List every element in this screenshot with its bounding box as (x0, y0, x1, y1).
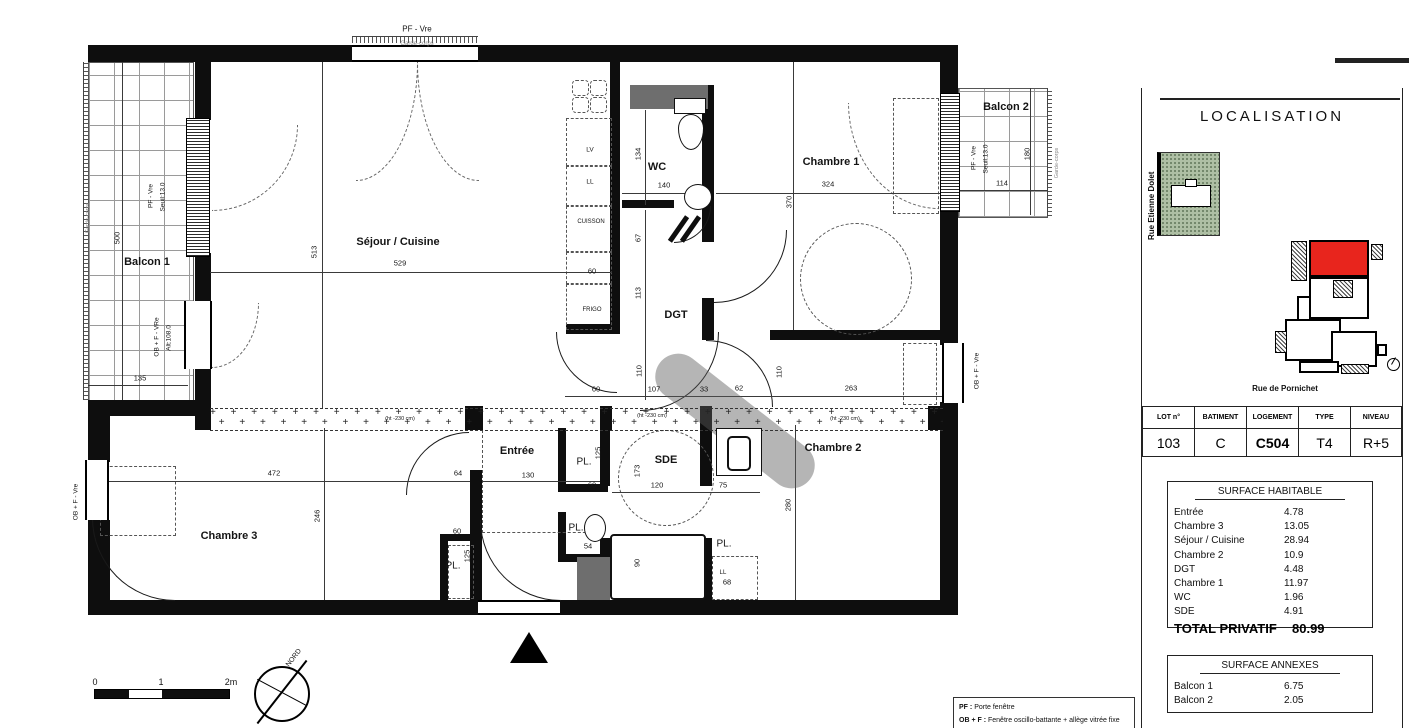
annexe-row-value: 6.75 (1284, 680, 1344, 694)
dimension-line (612, 492, 760, 493)
dimension-line (322, 62, 323, 408)
dim-label: 110 (775, 366, 784, 378)
dashed-furniture (712, 556, 758, 600)
building-outline (1377, 344, 1387, 356)
building-hatch (1371, 244, 1383, 260)
surface-annexes-box: SURFACE ANNEXES Balcon 16.75 Balcon 22.0… (1167, 655, 1373, 713)
surface-row-label: Chambre 1 (1174, 577, 1284, 591)
dim-label: 500 (113, 232, 122, 245)
dim-label: 110 (635, 365, 644, 377)
dashed-furniture (566, 166, 612, 206)
room-label-sejour-cuisine: Séjour / Cuisine (356, 236, 439, 248)
legend-line-obf: OB + F : Fenêtre oscillo-battante + allè… (959, 714, 1129, 727)
window (478, 600, 560, 615)
dim-label: 68 (723, 578, 731, 587)
col-header: LOT n° (1142, 406, 1194, 428)
surface-row-value: 4.48 (1284, 563, 1344, 577)
surface-row-value: 13.05 (1284, 520, 1344, 534)
north-arrow (254, 666, 310, 722)
window (184, 301, 212, 369)
window-type-label: OB + F - Vre (73, 484, 80, 520)
room-label-wc: WC (648, 161, 666, 173)
dimension-line (122, 62, 123, 400)
surface-row-value: 4.91 (1284, 605, 1344, 619)
dim-label: 90 (633, 559, 642, 567)
annexe-row-label: Balcon 1 (1174, 680, 1284, 694)
srow: Chambre 210.9 (1174, 549, 1366, 563)
door-swing-arc (406, 432, 469, 495)
dashed-furniture (800, 223, 912, 335)
localisation-title: LOCALISATION (1135, 108, 1409, 125)
dim-label: 114 (996, 179, 1008, 188)
building-outline (1185, 179, 1197, 187)
dimension-line (565, 396, 945, 397)
closet-label: PL. (445, 561, 460, 572)
dim-label: 125 (594, 447, 603, 460)
railing-label: Garde-corps (1054, 148, 1060, 179)
dim-label: 64 (454, 469, 462, 478)
dim-label: 60 (453, 527, 461, 536)
window-type-label: PF - Vre (402, 25, 431, 34)
scale-tick-label: 1 (158, 677, 163, 687)
balcony-deck (88, 62, 194, 402)
building-hatch (1341, 364, 1369, 374)
surface-row-value: 28.94 (1284, 534, 1344, 548)
room-label-balcon1: Balcon 1 (124, 256, 170, 268)
col-header: NIVEAU (1350, 406, 1401, 428)
dashed-furniture (590, 97, 607, 113)
dimension-line (645, 210, 646, 400)
wall-segment (195, 62, 211, 120)
lot-number: 103 (1142, 428, 1194, 456)
dashed-furniture (572, 80, 589, 96)
wall-segment (940, 45, 958, 95)
dim-label: 33 (700, 385, 708, 394)
dim-label: 472 (268, 469, 281, 478)
scale-bar (94, 689, 230, 699)
window-type-label: OB + F - VRe (154, 317, 161, 356)
dim-label: 67 (634, 234, 643, 242)
wall-segment (88, 600, 478, 615)
dashed-furniture (566, 118, 612, 166)
srow: Chambre 111.97 (1174, 577, 1366, 591)
dimension-line (88, 385, 188, 386)
dim-label: 263 (845, 384, 858, 393)
panel-frame-line (1402, 88, 1403, 728)
wall-segment (195, 253, 211, 303)
srow: Chambre 313.05 (1174, 520, 1366, 534)
batiment: C (1194, 428, 1246, 456)
dim-label: 60 (588, 267, 596, 276)
dim-label: 513 (310, 246, 319, 259)
window-type-label: Alt:108.0 (166, 325, 173, 351)
door-swing-dashed (356, 62, 418, 181)
building-outline (1299, 361, 1339, 373)
closet-label: PL. (568, 523, 583, 534)
srow: SDE4.91 (1174, 605, 1366, 619)
total-privatif-value: 80.99 (1292, 621, 1325, 636)
railing-label: Garde-corps (400, 41, 433, 47)
surface-row-value: 4.78 (1284, 506, 1344, 520)
entrance-arrow (510, 632, 548, 663)
door-swing-arc (714, 230, 787, 303)
wall-segment (940, 208, 958, 345)
logement: C504 (1246, 428, 1298, 456)
dimension-line (95, 481, 470, 482)
dimension-line (958, 190, 1048, 191)
srow: Entrée4.78 (1174, 506, 1366, 520)
dim-label: 529 (394, 259, 407, 268)
surface-habitable-title: SURFACE HABITABLE (1195, 486, 1345, 500)
group (1391, 357, 1396, 364)
panel-frame-line (1160, 98, 1400, 100)
dashed-furniture (618, 430, 714, 526)
building-outline (1171, 185, 1211, 207)
dashed-furniture (590, 80, 607, 96)
wall-segment (622, 200, 674, 208)
surface-row-label: WC (1174, 591, 1284, 605)
dim-label: 280 (784, 499, 793, 512)
legend-line-pf: PF : Porte fenêtre (959, 701, 1129, 714)
window-hatched (940, 93, 960, 212)
window (85, 460, 109, 520)
building-hatch (1275, 331, 1287, 353)
appliance-label-dishwasher: LV (586, 147, 593, 154)
right-panel: LOCALISATION Rue Etienne Dolet Rue de P (1135, 0, 1409, 728)
surface-row-value: 10.9 (1284, 549, 1344, 563)
surface-annexes-title: SURFACE ANNEXES (1200, 660, 1340, 674)
window-type-label: Seuil:13.0 (160, 183, 167, 212)
toilet-bowl (678, 114, 704, 150)
dim-label: 324 (822, 180, 835, 189)
dim-label: 125 (463, 550, 472, 563)
window-type-label: Seuil:13.0 (983, 145, 990, 174)
floor-plan: PF : Porte fenêtre OB + F : Fenêtre osci… (0, 0, 1135, 728)
highlighted-unit (1309, 240, 1369, 277)
dim-label: 135 (134, 374, 147, 383)
srow: WC1.96 (1174, 591, 1366, 605)
surface-row-label: Entrée (1174, 506, 1284, 520)
closet-label: PL. (576, 457, 591, 468)
appliance-label-washer: LL (720, 570, 727, 576)
wall-segment (88, 45, 195, 62)
surface-row-value: 1.96 (1284, 591, 1344, 605)
legend-desc: Porte fenêtre (974, 704, 1014, 711)
dashed-furniture (572, 97, 589, 113)
appliance-label-cooktop: CUISSON (577, 219, 604, 225)
dim-label: 60 (588, 481, 596, 490)
door-swing-dashed (212, 125, 298, 211)
lot-info-table: LOT n° BATIMENT LOGEMENT TYPE NIVEAU 103… (1142, 406, 1402, 457)
window-hatched (186, 118, 210, 257)
total-privatif-label: TOTAL PRIVATIF (1174, 621, 1292, 636)
dim-label: 113 (634, 287, 643, 299)
wall-segment (88, 416, 110, 462)
dimension-line (482, 481, 600, 482)
service-shaft (577, 557, 610, 600)
surface-habitable-box: SURFACE HABITABLE Entrée4.78 Chambre 313… (1167, 481, 1373, 628)
room-label-chambre2: Chambre 2 (805, 442, 862, 454)
dim-label: 180 (1023, 148, 1032, 161)
door-swing-dashed (417, 62, 479, 181)
legend-box: PF : Porte fenêtre OB + F : Fenêtre osci… (953, 697, 1135, 728)
dim-label: 134 (634, 148, 643, 161)
dim-label: 60 (592, 385, 600, 394)
dim-label: 246 (313, 510, 322, 523)
door-swing-dashed (212, 303, 259, 368)
room-label-entree: Entrée (500, 445, 534, 457)
appliance-label-washer: LL (586, 179, 593, 186)
wall-segment (95, 690, 129, 698)
dim-label: 370 (785, 196, 794, 209)
sde-washbasin-bowl (727, 436, 751, 471)
annexe-row-value: 2.05 (1284, 694, 1344, 708)
ceiling-height-note: (ht -230 cm) (385, 416, 415, 422)
window-type-label: OB + F - Vre (974, 353, 981, 389)
surface-row-label: SDE (1174, 605, 1284, 619)
wall-segment (560, 600, 958, 615)
room-label-sde: SDE (655, 454, 678, 466)
door-swing-arc (556, 332, 617, 393)
trow: TOTAL PRIVATIF80.99 (1174, 621, 1366, 636)
surface-row-value: 11.97 (1284, 577, 1344, 591)
pl-washbasin (584, 514, 606, 542)
closet-label: PL. (716, 539, 731, 550)
panel-frame-line (1335, 58, 1409, 63)
dim-label: 130 (522, 471, 535, 480)
wall-segment (195, 406, 211, 430)
dim-label: 173 (633, 465, 642, 478)
srow: Balcon 22.05 (1174, 694, 1366, 708)
site-map-green (1157, 152, 1220, 236)
window (352, 45, 478, 62)
street-label-bottom: Rue de Pornichet (1225, 384, 1345, 393)
dimension-line (645, 110, 646, 205)
wall-segment (88, 400, 210, 416)
col-header: BATIMENT (1194, 406, 1246, 428)
dimension-line (324, 428, 325, 600)
dim-label: 54 (584, 542, 592, 551)
srow: DGT4.48 (1174, 563, 1366, 577)
srow: Séjour / Cuisine28.94 (1174, 534, 1366, 548)
dashed-furniture (100, 466, 176, 536)
col-header: TYPE (1298, 406, 1350, 428)
legend-key: OB + F : (959, 717, 986, 724)
scale-tick-label: 2m (225, 677, 238, 687)
wall-segment (940, 402, 958, 615)
srow: Balcon 16.75 (1174, 680, 1366, 694)
wall-segment (478, 45, 940, 62)
wc-washbasin (684, 184, 712, 210)
room-label-balcon2: Balcon 2 (983, 101, 1029, 113)
wall-segment (162, 690, 229, 698)
surface-row-label: Séjour / Cuisine (1174, 534, 1284, 548)
legend-key: PF : (959, 704, 972, 711)
room-label-dgt: DGT (664, 309, 687, 321)
map-compass-icon (1387, 358, 1400, 371)
appliance-label-fridge: FRIGO (583, 307, 602, 313)
annexe-row-label: Balcon 2 (1174, 694, 1284, 708)
window-type-label: PF - Vre (971, 146, 978, 170)
dim-label: 75 (719, 481, 727, 490)
window (942, 343, 964, 403)
room-label-chambre1: Chambre 1 (803, 156, 860, 168)
dimension-line (210, 272, 612, 273)
dashed-furniture (893, 98, 939, 214)
legend-desc: Fenêtre oscillo-battante + allège vitrée… (988, 717, 1120, 724)
surface-row-label: Chambre 3 (1174, 520, 1284, 534)
dim-label: 90 (706, 561, 715, 569)
shower-tray (610, 534, 706, 600)
dim-label: 62 (735, 384, 743, 393)
building-hatch (1291, 241, 1307, 281)
railing (1047, 88, 1052, 216)
floorplan-page: PF : Porte fenêtre OB + F : Fenêtre osci… (0, 0, 1409, 728)
dashed-furniture (566, 206, 612, 252)
toilet-tank (674, 98, 706, 114)
dimension-line (716, 193, 940, 194)
window-type-label: PF - Vre (148, 184, 155, 208)
scale-tick-label: 0 (92, 677, 97, 687)
surface-row-label: DGT (1174, 563, 1284, 577)
room-label-chambre3: Chambre 3 (201, 530, 258, 542)
type: T4 (1298, 428, 1350, 456)
building-footprint (1275, 236, 1395, 381)
ceiling-height-note: (ht -230 cm) (637, 413, 667, 419)
col-header: LOGEMENT (1246, 406, 1298, 428)
dim-label: 140 (658, 181, 671, 190)
ceiling-height-note: (ht -230 cm) (830, 416, 860, 422)
building-hatch (1333, 280, 1353, 298)
dim-label: 120 (651, 481, 664, 490)
railing-label: Garde-corps (85, 203, 91, 234)
wall-segment (195, 45, 352, 62)
dim-label: 107 (648, 385, 661, 394)
surface-row-label: Chambre 2 (1174, 549, 1284, 563)
niveau: R+5 (1350, 428, 1401, 456)
street-label-left: Rue Etienne Dolet (1147, 172, 1156, 240)
